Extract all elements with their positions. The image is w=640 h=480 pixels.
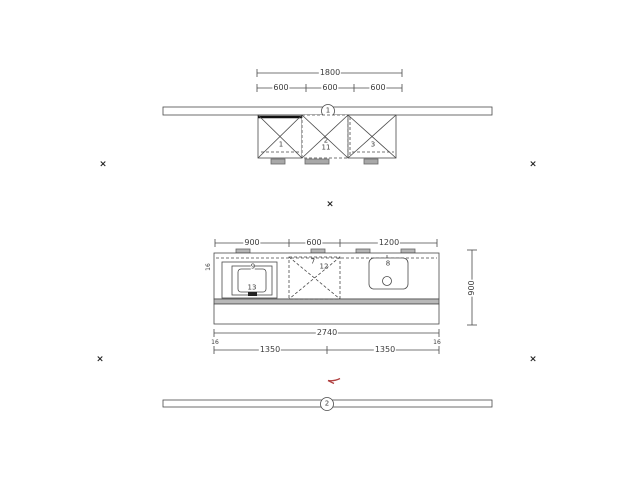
dim-label-16-left: 16 <box>210 340 220 346</box>
mid-cabinet-label: 7 <box>311 259 315 266</box>
hob-unit <box>222 262 277 298</box>
dim-label-1350-right: 1350 <box>374 346 396 354</box>
section-marker-1: 1 <box>325 108 331 115</box>
red-annotation-mark <box>328 379 340 384</box>
hob-detail-label: 13 <box>248 285 257 292</box>
cross-mark-top-left: × <box>99 161 107 170</box>
cross-mark-bottom-left: × <box>96 356 104 365</box>
cad-drawing-canvas: 1800 600 600 600 1 1 2 11 3 × × × × × 90… <box>0 0 640 480</box>
section-marker-2: 2 <box>324 401 330 408</box>
dim-label-600-2: 600 <box>321 84 338 92</box>
cross-mark-center: × <box>326 201 334 210</box>
cabinet-1-label: 1 <box>279 142 283 149</box>
dim-label-900: 900 <box>243 239 260 247</box>
hob-frame-label: 9 <box>251 264 255 271</box>
dim-label-600: 600 <box>305 239 322 247</box>
cabinet-2-sub-label: 11 <box>322 145 331 152</box>
cross-mark-bottom-right: × <box>529 356 537 365</box>
dim-label-total-elevation: 1800 <box>319 69 341 77</box>
dim-label-1350-left: 1350 <box>259 346 281 354</box>
dim-label-1200: 1200 <box>378 239 400 247</box>
dim-label-600-1: 600 <box>272 84 289 92</box>
cross-mark-top-right: × <box>529 161 537 170</box>
edge-panel-16-label: 16 <box>206 262 212 272</box>
cabinet-3-label: 3 <box>371 142 375 149</box>
dim-label-total-2740: 2740 <box>316 329 338 337</box>
sink-label: 8 <box>386 261 390 268</box>
dim-label-16-right: 16 <box>432 340 442 346</box>
dim-label-600-3: 600 <box>369 84 386 92</box>
dim-label-depth-900: 900 <box>468 279 476 296</box>
mid-cabinet-alt-label: 12 <box>320 264 329 271</box>
